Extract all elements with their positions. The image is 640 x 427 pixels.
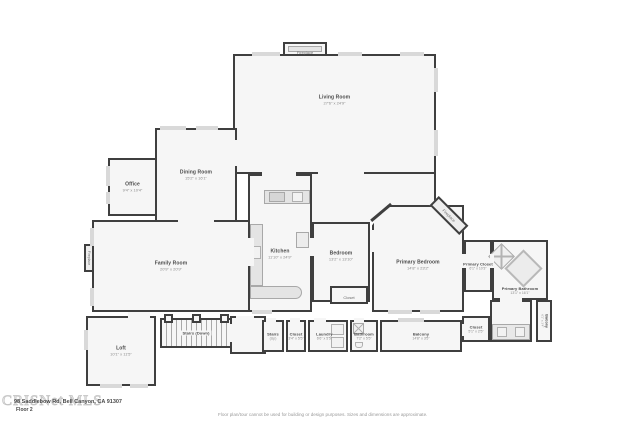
fireplace-hearth (288, 46, 322, 52)
window (106, 192, 110, 204)
washer-icon (331, 324, 344, 335)
room-living: Living Room 27'6" x 24'9" (233, 54, 436, 174)
living-dims: 27'6" x 24'9" (319, 101, 350, 106)
right-closet-dims: 5'1" x 2'5" (468, 329, 483, 333)
family-fireplace-label: Fireplace (87, 251, 91, 265)
stairs-down-label: Stairs (Down) (180, 331, 211, 336)
door-gap (178, 218, 214, 226)
window (434, 68, 438, 92)
door-gap (490, 254, 494, 268)
door-gap (462, 324, 466, 336)
dining-dims: 15'2" x 16'1" (180, 176, 212, 181)
family-name: Family Room (155, 260, 188, 266)
kitchen-dims: 11'10" x 24'9" (268, 254, 292, 259)
window (434, 130, 438, 156)
hall-bathroom-dims: 7'2" x 5'5" (354, 336, 374, 340)
stairs-up-name: Stairs (267, 331, 279, 336)
shower-icon (353, 323, 364, 334)
window (84, 330, 88, 350)
dryer-icon (331, 337, 344, 348)
property-address: 98 Saddlebow Rd, Bell Canyon, CA 91307 (14, 399, 122, 405)
balcony-name: Balcony (412, 331, 429, 336)
stairs-up-sub: (Up) (267, 336, 279, 340)
door-gap (354, 318, 364, 322)
side-balcony-dims: 6'1" x 3'4" (540, 314, 543, 328)
room-right-closet: Closet 5'1" x 2'5" (462, 316, 490, 342)
balcony-dims: 14'8" x 3'5" (412, 336, 429, 340)
room-family: Family Room 20'9" x 20'9" (92, 220, 250, 312)
bedroom-closet-label: Closet (343, 295, 354, 300)
bedroom-name: Bedroom (329, 250, 353, 256)
window (100, 384, 122, 388)
window (90, 228, 94, 246)
office-dims: 9'4" x 10'4" (123, 188, 143, 193)
primary-bedroom-name: Primary Bedroom (396, 259, 439, 265)
dining-name: Dining Room (180, 169, 212, 175)
door-gap (290, 318, 300, 322)
stairs-up: Stairs (Up) (262, 320, 284, 352)
window (196, 126, 218, 130)
room-dining: Dining Room 15'2" x 16'1" (155, 128, 237, 222)
door-gap (229, 140, 237, 166)
door-gap (266, 318, 276, 322)
disclaimer-text: Floor plan/tour cannot be used for build… (218, 412, 427, 417)
window (420, 310, 440, 314)
door-gap (128, 312, 150, 320)
stair-post (164, 314, 173, 323)
door-gap (228, 324, 236, 342)
door-gap (262, 172, 296, 178)
family-dims: 20'9" x 20'9" (155, 267, 188, 272)
office-name: Office (123, 181, 143, 187)
primary-bathroom-name: Primary Bathroom (502, 286, 539, 291)
room-primary-closet: Primary Closet 6'1" x 10'3" (464, 240, 492, 292)
hall-closet-name: Closet (288, 331, 303, 336)
stove-icon (269, 192, 285, 202)
island-sink-icon (292, 192, 303, 202)
door-gap (236, 316, 254, 322)
kitchen-name: Kitchen (268, 248, 292, 254)
door-gap (310, 238, 316, 256)
window (252, 52, 280, 56)
window (252, 310, 272, 314)
toilet-icon (355, 342, 363, 348)
room-bedroom-closet: Closet (330, 286, 368, 304)
room-office: Office 9'4" x 10'4" (108, 158, 157, 216)
sink-icon (497, 327, 507, 337)
window (90, 288, 94, 306)
room-side-balcony: Balcony 6'1" x 3'4" (536, 300, 552, 342)
door-gap (500, 296, 522, 304)
room-hall-closet: Closet 3'4" x 5'5" (286, 320, 306, 352)
stair-post (220, 314, 229, 323)
floor-label: Floor 2 (16, 407, 33, 413)
bedroom-dims: 13'2" x 13'10" (329, 257, 353, 262)
window (400, 52, 424, 56)
door-gap (370, 230, 376, 252)
door-gap (318, 172, 364, 178)
sink-icon (515, 327, 525, 337)
door-gap (314, 318, 326, 322)
living-name: Living Room (319, 94, 350, 100)
primary-bathroom-dims: 13'1" x 16'1" (502, 291, 539, 295)
floor-plan-page: Fireplace Living Room 27'6" x 24'9" Dini… (0, 0, 640, 427)
window (388, 310, 412, 314)
window (338, 52, 362, 56)
family-fireplace: Fireplace (84, 244, 94, 272)
fridge-icon (296, 232, 309, 248)
door-gap (462, 254, 468, 268)
loft-dims: 10'1" x 11'5" (110, 352, 132, 357)
window (160, 126, 186, 130)
window (106, 166, 110, 186)
stair-post (192, 314, 201, 323)
door-gap (246, 238, 254, 266)
room-balcony: Balcony 14'8" x 3'5" (380, 320, 462, 352)
side-balcony-name: Balcony (544, 314, 548, 328)
sliding-door (398, 318, 424, 322)
primary-bedroom-dims: 14'8" x 23'2" (396, 265, 439, 270)
right-closet-name: Closet (468, 324, 483, 329)
room-loft: Loft 10'1" x 11'5" (86, 316, 156, 386)
kitchen-counter-lower (250, 286, 302, 299)
hall-closet-dims: 3'4" x 5'5" (288, 336, 303, 340)
loft-name: Loft (110, 345, 132, 351)
window (130, 384, 148, 388)
